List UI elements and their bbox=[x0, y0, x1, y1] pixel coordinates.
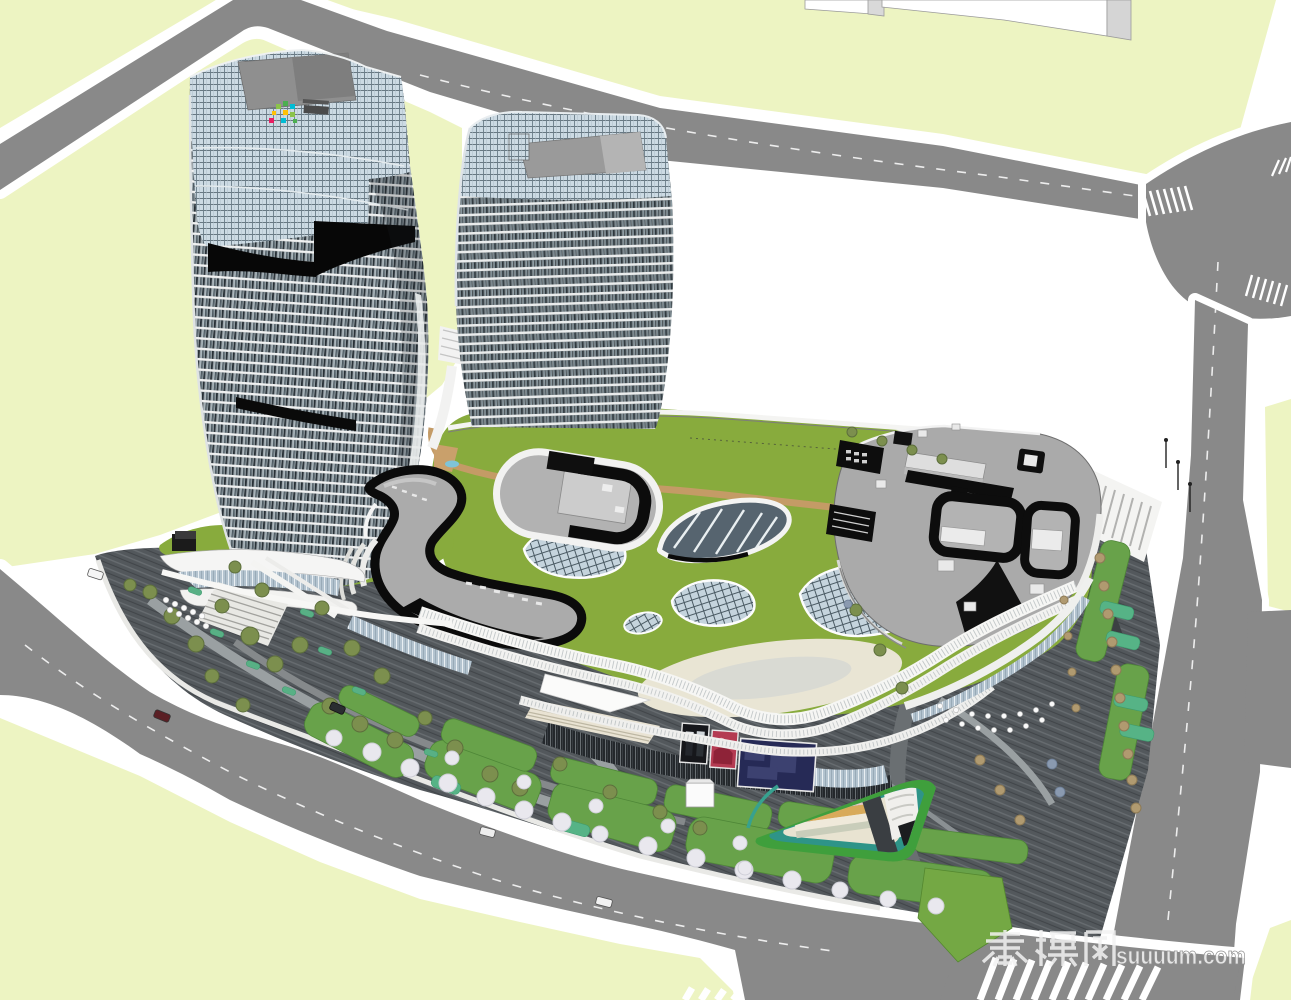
svg-text:suuuum.com: suuuum.com bbox=[1116, 943, 1246, 970]
